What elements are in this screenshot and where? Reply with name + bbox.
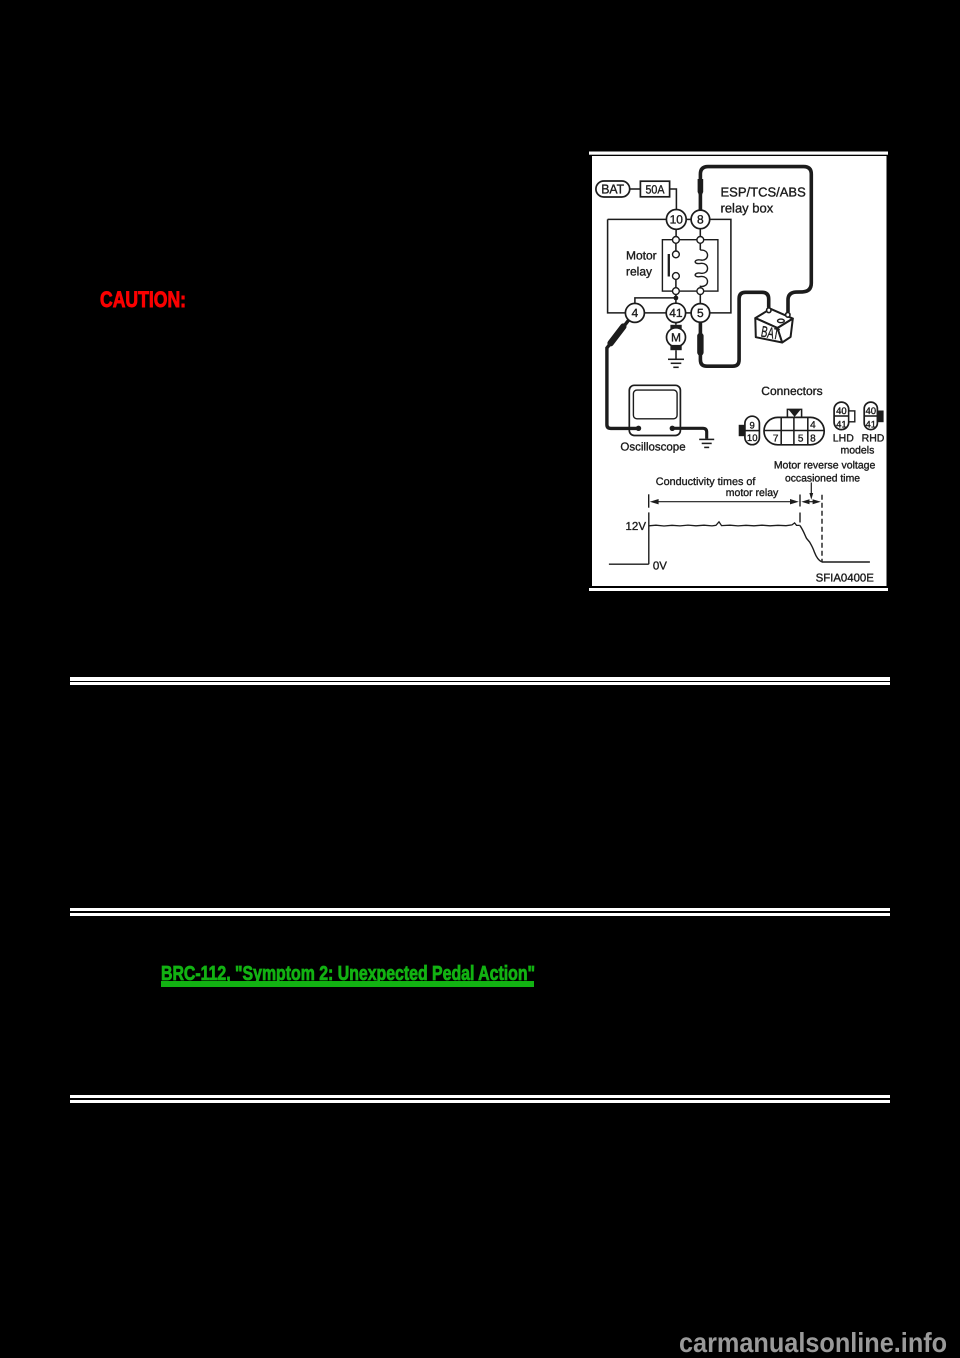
svg-text:4: 4 <box>810 420 816 431</box>
svg-text:41: 41 <box>866 419 877 430</box>
svg-text:4: 4 <box>632 306 639 320</box>
svg-text:5: 5 <box>798 433 804 444</box>
svg-text:SFIA0400E: SFIA0400E <box>816 572 875 584</box>
svg-text:relay box: relay box <box>721 200 774 215</box>
svg-text:models: models <box>840 444 874 456</box>
svg-text:9: 9 <box>750 421 755 432</box>
svg-text:motor relay: motor relay <box>726 487 779 499</box>
svg-text:BAT: BAT <box>601 182 624 197</box>
svg-text:occasioned time: occasioned time <box>785 473 860 484</box>
svg-text:8: 8 <box>810 433 816 444</box>
svg-text:Oscilloscope: Oscilloscope <box>620 442 685 454</box>
svg-text:10: 10 <box>747 433 758 444</box>
svg-text:BAT: BAT <box>760 324 781 344</box>
svg-text:12V: 12V <box>626 521 647 533</box>
svg-text:ESP/TCS/ABS: ESP/TCS/ABS <box>721 184 807 199</box>
svg-text:5: 5 <box>697 306 704 320</box>
svg-text:41: 41 <box>836 419 847 430</box>
svg-text:40: 40 <box>866 406 877 417</box>
svg-text:50A: 50A <box>646 183 665 197</box>
svg-text:40: 40 <box>836 406 847 417</box>
svg-text:0V: 0V <box>653 561 667 573</box>
svg-text:Connectors: Connectors <box>761 384 822 398</box>
svg-text:LHD: LHD <box>833 433 854 445</box>
svg-text:Motor reverse voltage: Motor reverse voltage <box>774 459 876 471</box>
svg-text:M: M <box>671 331 681 345</box>
svg-text:8: 8 <box>697 213 704 227</box>
svg-text:RHD: RHD <box>862 433 885 445</box>
svg-text:7: 7 <box>773 433 779 444</box>
svg-text:Motor: Motor <box>626 248 657 262</box>
svg-text:10: 10 <box>670 213 684 227</box>
svg-text:41: 41 <box>669 306 683 320</box>
svg-text:relay: relay <box>626 264 652 278</box>
